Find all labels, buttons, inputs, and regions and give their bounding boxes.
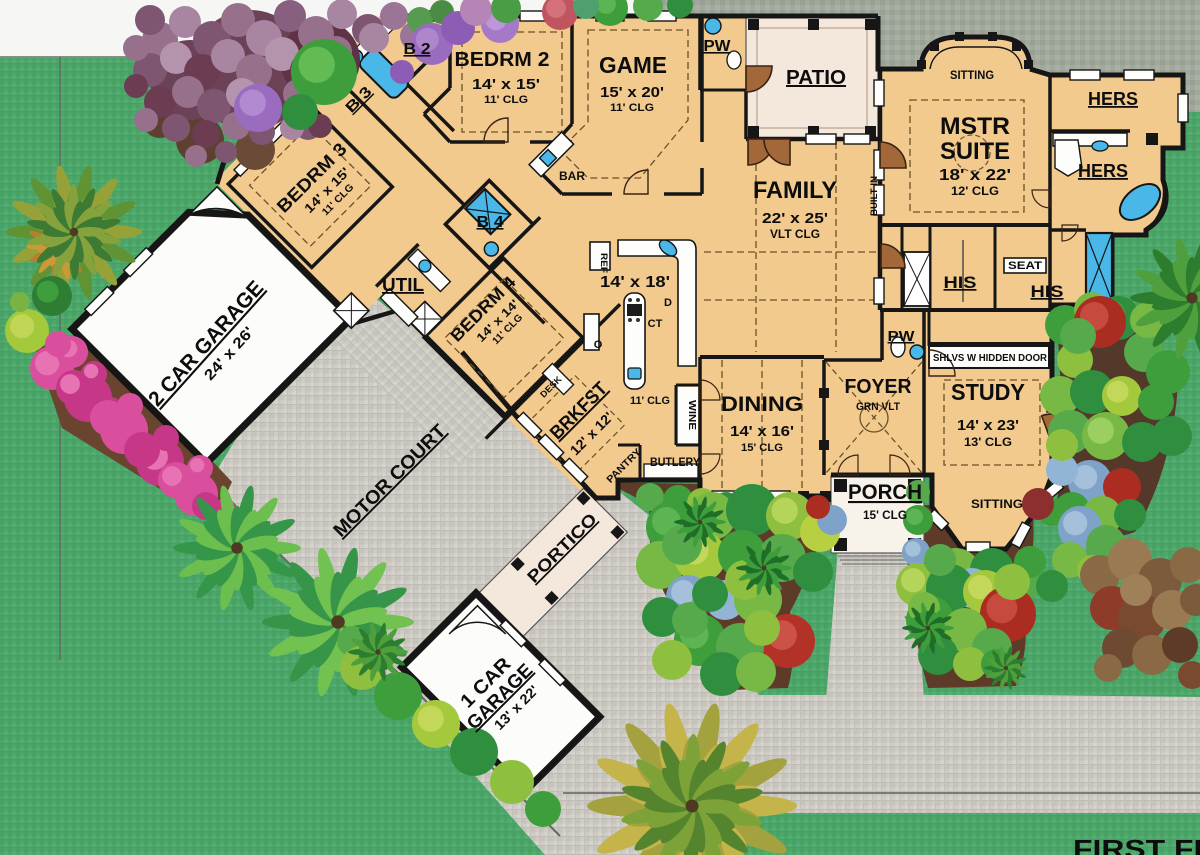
svg-text:BEDRM 2: BEDRM 2 (455, 49, 550, 71)
svg-text:14' x 23': 14' x 23' (957, 417, 1019, 434)
svg-text:15' x 20': 15' x 20' (600, 84, 664, 101)
svg-text:GAME: GAME (599, 52, 667, 78)
svg-text:STUDY: STUDY (951, 379, 1025, 405)
svg-text:WINE: WINE (686, 400, 697, 430)
svg-text:HIS: HIS (1031, 282, 1064, 301)
svg-text:B 2: B 2 (404, 41, 431, 58)
svg-text:HERS: HERS (1088, 89, 1138, 109)
svg-text:GRN VLT: GRN VLT (856, 401, 900, 413)
svg-text:FOYER: FOYER (845, 376, 913, 398)
svg-text:B 4: B 4 (477, 214, 504, 231)
svg-text:SITTING: SITTING (971, 497, 1023, 511)
svg-text:VLT CLG: VLT CLG (770, 227, 820, 241)
svg-text:BAR: BAR (559, 169, 585, 183)
svg-text:15' CLG: 15' CLG (741, 442, 783, 454)
svg-text:11' CLG: 11' CLG (484, 94, 528, 106)
svg-text:FIRST FL: FIRST FL (1073, 834, 1200, 855)
svg-text:PW: PW (888, 328, 916, 345)
svg-text:DINING: DINING (721, 393, 803, 416)
svg-text:PORCH: PORCH (848, 481, 922, 504)
svg-text:SEAT: SEAT (1008, 260, 1042, 272)
svg-text:D: D (664, 297, 672, 309)
svg-text:PATIO: PATIO (786, 67, 846, 89)
svg-text:12' CLG: 12' CLG (951, 184, 999, 198)
svg-text:18' x 22': 18' x 22' (939, 167, 1011, 184)
svg-text:14' x 18': 14' x 18' (600, 274, 670, 291)
svg-text:UTIL: UTIL (382, 275, 424, 295)
svg-text:15' CLG: 15' CLG (863, 508, 907, 522)
svg-text:HERS: HERS (1078, 161, 1128, 181)
svg-text:14' x 15': 14' x 15' (472, 76, 540, 93)
svg-text:BUILT IN: BUILT IN (869, 176, 879, 216)
svg-text:BUTLERY: BUTLERY (650, 455, 700, 469)
svg-text:O: O (594, 339, 603, 351)
svg-text:REF: REF (599, 253, 609, 274)
svg-text:SITTING: SITTING (950, 68, 994, 82)
svg-text:14' x 16': 14' x 16' (730, 423, 794, 440)
svg-text:CT: CT (648, 318, 663, 330)
svg-text:13' CLG: 13' CLG (964, 435, 1012, 449)
svg-text:MSTR: MSTR (940, 113, 1010, 140)
svg-text:SHLVS W HIDDEN DOOR: SHLVS W HIDDEN DOOR (933, 353, 1048, 364)
svg-text:PW: PW (704, 38, 732, 55)
svg-text:SUITE: SUITE (940, 138, 1010, 165)
svg-text:11' CLG: 11' CLG (610, 102, 654, 114)
svg-text:22' x 25': 22' x 25' (762, 210, 828, 227)
svg-text:HIS: HIS (944, 273, 977, 292)
svg-text:11' CLG: 11' CLG (630, 395, 670, 407)
svg-text:FAMILY: FAMILY (753, 177, 837, 204)
